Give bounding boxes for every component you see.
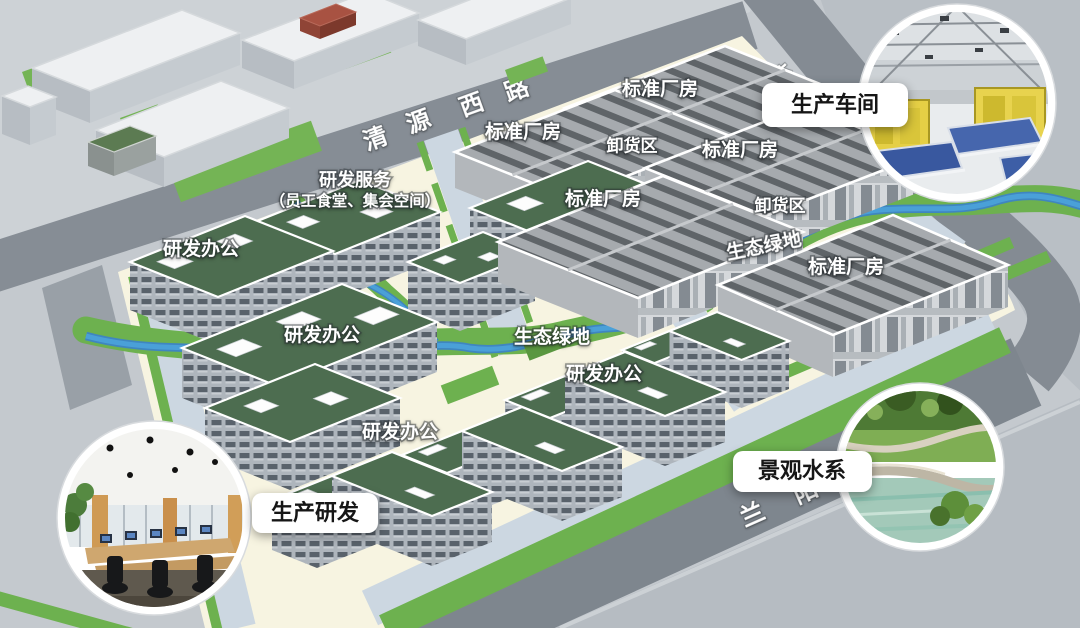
callout-production-workshop: 生产车间 [762, 83, 908, 127]
callout-label: 景观水系 [758, 458, 846, 483]
callout-production-rd: 生产研发 [252, 493, 378, 533]
masterplan-rendering: 清 源 西 路 柳 道 兰 阳 标准厂房 标准厂房 标准厂房 标准厂 [0, 0, 1080, 628]
label-standard-factory-4: 标准厂房 [565, 187, 641, 210]
label-rd-office-3: 研发办公 [566, 362, 642, 385]
label-rd-office-2: 研发办公 [284, 323, 360, 346]
existing-building [2, 86, 56, 145]
label-rd-service-line1: 研发服务 [319, 169, 392, 190]
callout-label: 生产研发 [271, 500, 360, 525]
label-standard-factory-2: 标准厂房 [622, 77, 698, 100]
masterplan-svg: 清 源 西 路 柳 道 兰 阳 标准厂房 标准厂房 标准厂房 标准厂 [0, 0, 1080, 628]
label-unloading-2: 卸货区 [755, 195, 806, 215]
label-standard-factory-5: 标准厂房 [808, 255, 884, 278]
label-unloading-1: 卸货区 [607, 135, 658, 155]
callout-landscape-water: 景观水系 [733, 451, 872, 492]
label-rd-service-line2: （员工食堂、集会空间） [270, 191, 441, 210]
label-standard-factory-3: 标准厂房 [702, 138, 778, 161]
label-rd-office-1: 研发办公 [163, 237, 239, 260]
label-eco-green-1: 生态绿地 [514, 325, 590, 348]
label-rd-office-4: 研发办公 [362, 420, 438, 443]
label-standard-factory-1: 标准厂房 [485, 120, 561, 143]
callout-label: 生产车间 [791, 92, 879, 117]
